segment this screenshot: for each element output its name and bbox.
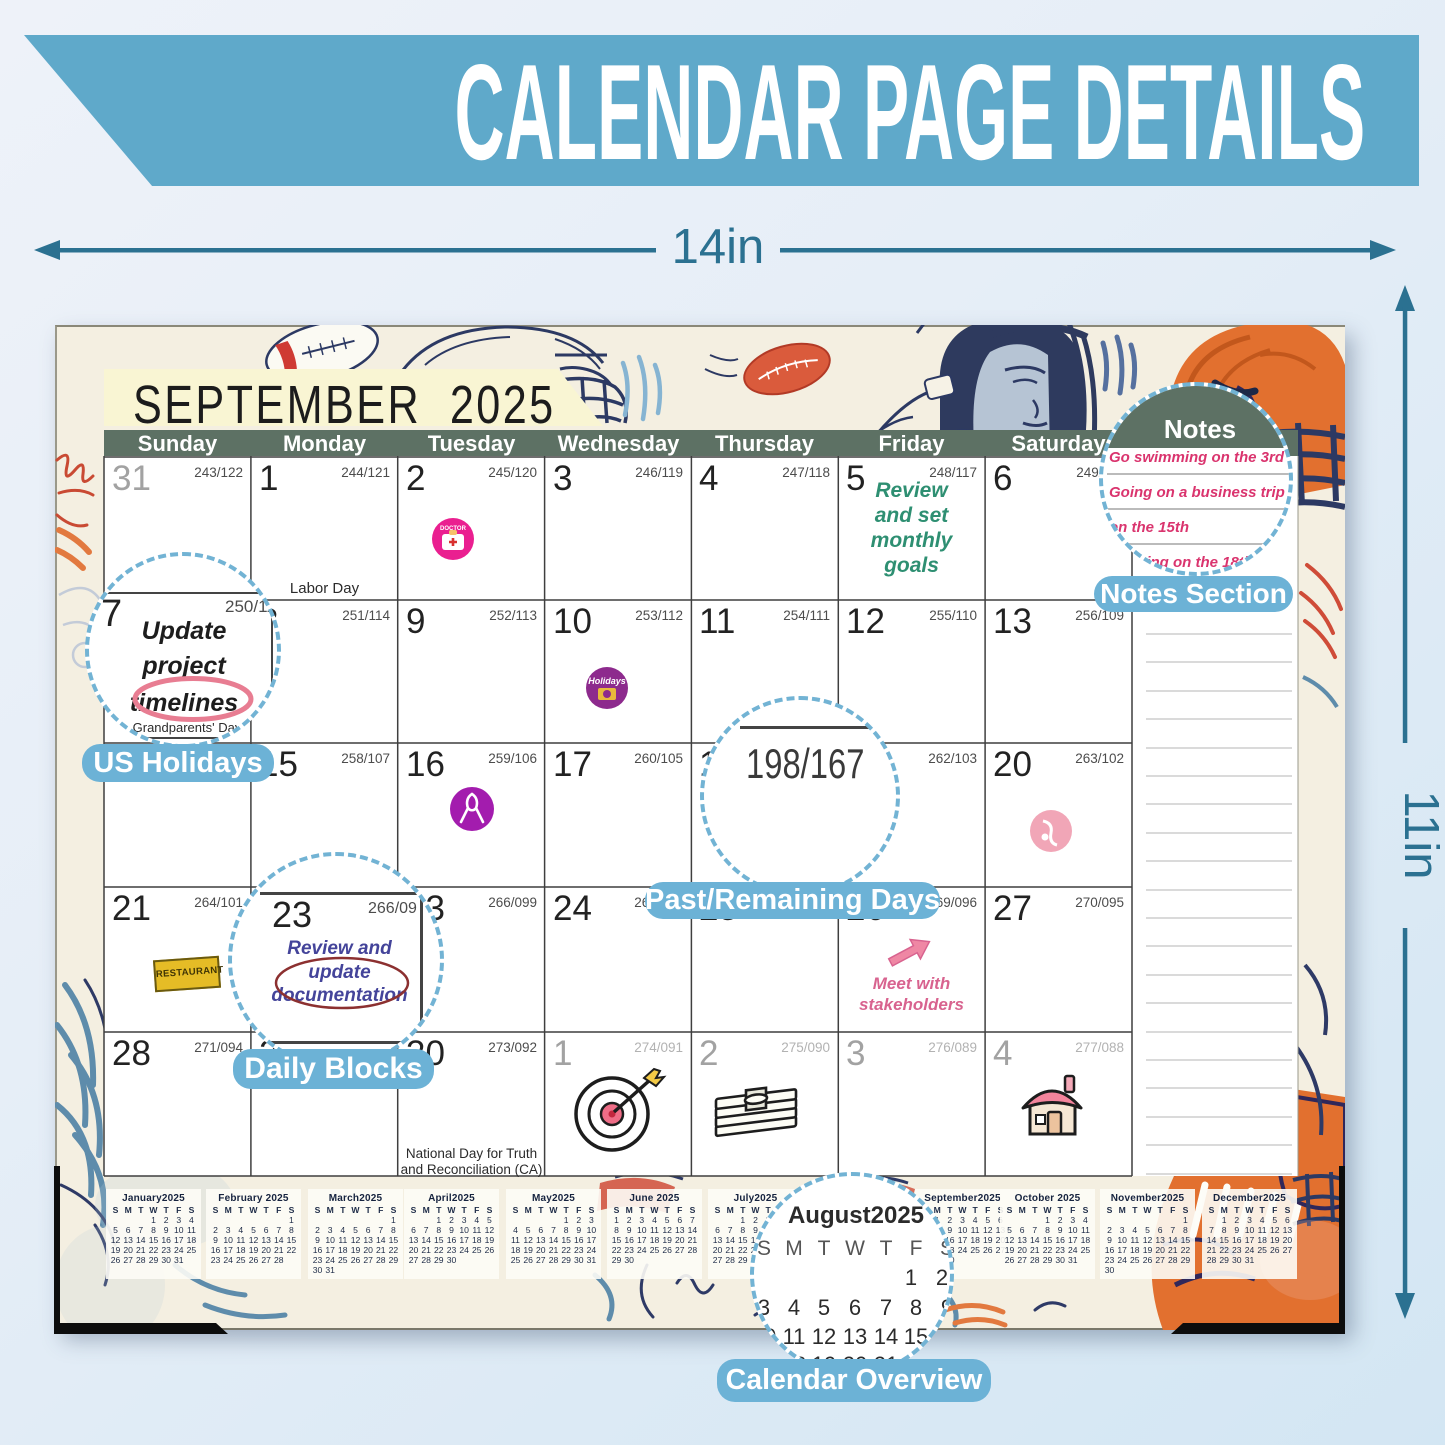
svg-text:Holidays: Holidays — [588, 676, 626, 686]
